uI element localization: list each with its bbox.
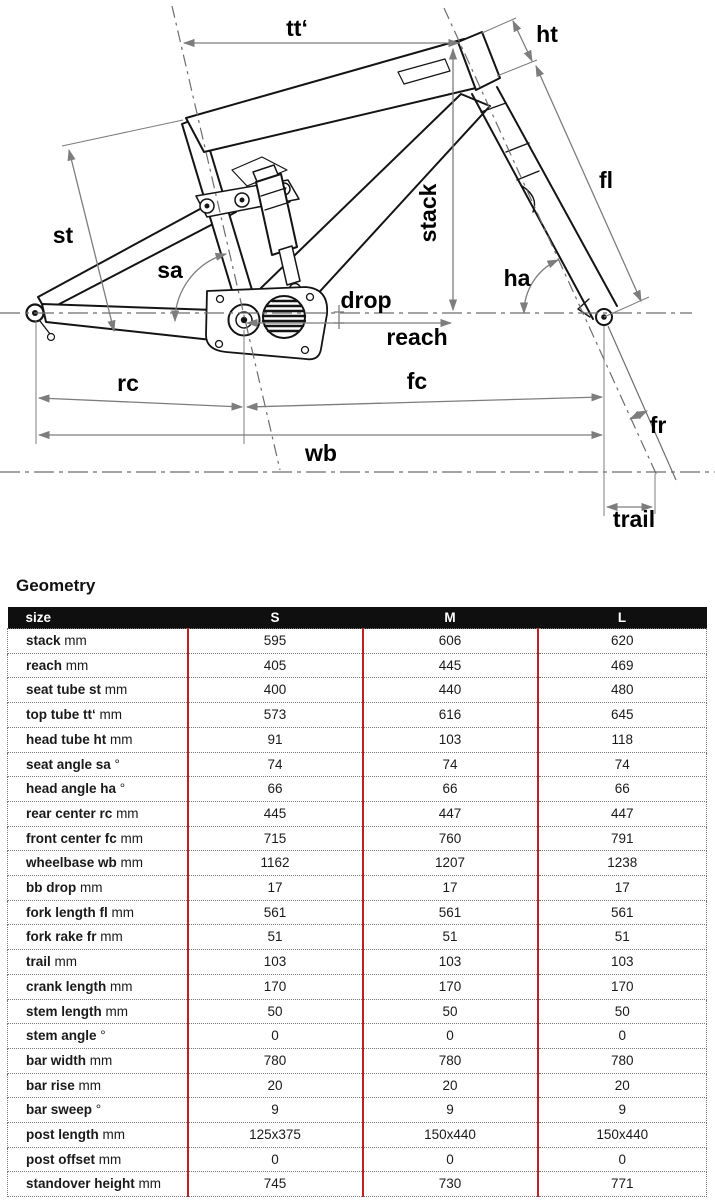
row-label: bar width — [26, 1053, 86, 1068]
value-cell-m: 9 — [363, 1098, 538, 1123]
table-row: head tube ht mm91103118 — [8, 727, 707, 752]
row-label: seat tube st — [26, 682, 101, 697]
table-row: trail mm103103103 — [8, 950, 707, 975]
row-label: stack — [26, 633, 61, 648]
value-cell-m: 440 — [363, 678, 538, 703]
row-label-cell: top tube tt‘ mm — [8, 703, 188, 728]
value-cell-s: 400 — [188, 678, 363, 703]
value-cell-m: 103 — [363, 950, 538, 975]
row-label-cell: crank length mm — [8, 974, 188, 999]
label-top-tube: tt‘ — [286, 15, 308, 41]
row-unit: mm — [106, 732, 132, 747]
value-cell-s: 715 — [188, 826, 363, 851]
value-cell-s: 74 — [188, 752, 363, 777]
row-label: reach — [26, 658, 62, 673]
row-unit: mm — [75, 1078, 101, 1093]
row-unit: mm — [96, 707, 122, 722]
table-row: bar width mm780780780 — [8, 1048, 707, 1073]
value-cell-l: 469 — [538, 653, 707, 678]
row-label-cell: stem angle ° — [8, 1024, 188, 1049]
value-cell-s: 50 — [188, 999, 363, 1024]
row-label: standover height — [26, 1176, 135, 1191]
row-label-cell: head angle ha ° — [8, 777, 188, 802]
size-column-header-m: M — [363, 607, 538, 629]
row-unit: mm — [51, 954, 77, 969]
value-cell-l: 561 — [538, 900, 707, 925]
row-unit: ° — [97, 1028, 106, 1043]
value-cell-l: 1238 — [538, 851, 707, 876]
row-unit: mm — [117, 831, 143, 846]
row-unit: mm — [76, 880, 102, 895]
row-label-cell: post offset mm — [8, 1147, 188, 1172]
value-cell-m: 1207 — [363, 851, 538, 876]
table-row: fork length fl mm561561561 — [8, 900, 707, 925]
row-unit: mm — [97, 929, 123, 944]
size-column-header: size — [8, 607, 188, 629]
table-row: post length mm125x375150x440150x440 — [8, 1123, 707, 1148]
table-row: seat angle sa °747474 — [8, 752, 707, 777]
value-cell-s: 445 — [188, 801, 363, 826]
steering-axis-line — [444, 8, 658, 478]
value-cell-s: 91 — [188, 727, 363, 752]
label-stack: stack — [415, 183, 441, 242]
label-fork-rake: fr — [650, 412, 667, 438]
fork-blade-rear-edge — [472, 94, 593, 319]
row-label: seat angle sa — [26, 757, 111, 772]
value-cell-m: 780 — [363, 1048, 538, 1073]
row-label: trail — [26, 954, 51, 969]
value-cell-l: 645 — [538, 703, 707, 728]
row-unit: ° — [116, 781, 125, 796]
value-cell-l: 620 — [538, 629, 707, 654]
geometry-diagram: tt‘ ht st sa stack fl ha drop reach rc f… — [0, 0, 715, 560]
row-unit: mm — [62, 658, 88, 673]
value-cell-m: 150x440 — [363, 1123, 538, 1148]
row-label-cell: seat tube st mm — [8, 678, 188, 703]
table-row: bar sweep °999 — [8, 1098, 707, 1123]
label-trail: trail — [613, 506, 655, 532]
value-cell-s: 51 — [188, 925, 363, 950]
value-cell-s: 125x375 — [188, 1123, 363, 1148]
value-cell-m: 616 — [363, 703, 538, 728]
value-cell-m: 17 — [363, 876, 538, 901]
label-front-center: fc — [407, 368, 428, 394]
row-unit: mm — [135, 1176, 161, 1191]
value-cell-l: 118 — [538, 727, 707, 752]
value-cell-l: 150x440 — [538, 1123, 707, 1148]
row-unit: mm — [101, 682, 127, 697]
value-cell-l: 50 — [538, 999, 707, 1024]
table-row: top tube tt‘ mm573616645 — [8, 703, 707, 728]
value-cell-m: 51 — [363, 925, 538, 950]
value-cell-l: 66 — [538, 777, 707, 802]
dim-fork-rake — [630, 411, 647, 419]
value-cell-s: 0 — [188, 1024, 363, 1049]
row-label: post offset — [26, 1152, 95, 1167]
value-cell-m: 74 — [363, 752, 538, 777]
row-unit: mm — [117, 855, 143, 870]
value-cell-s: 103 — [188, 950, 363, 975]
row-label-cell: fork rake fr mm — [8, 925, 188, 950]
row-label: fork rake fr — [26, 929, 97, 944]
value-cell-m: 170 — [363, 974, 538, 999]
table-row: stack mm595606620 — [8, 629, 707, 654]
row-label: rear center rc — [26, 806, 112, 821]
row-label-cell: fork length fl mm — [8, 900, 188, 925]
table-row: rear center rc mm445447447 — [8, 801, 707, 826]
table-row: wheelbase wb mm116212071238 — [8, 851, 707, 876]
value-cell-l: 0 — [538, 1147, 707, 1172]
value-cell-s: 780 — [188, 1048, 363, 1073]
row-unit: mm — [99, 1127, 125, 1142]
label-head-tube: ht — [536, 21, 558, 47]
value-cell-s: 20 — [188, 1073, 363, 1098]
row-label: stem angle — [26, 1028, 97, 1043]
value-cell-l: 771 — [538, 1172, 707, 1197]
dim-fork-length — [536, 66, 641, 301]
row-label: wheelbase wb — [26, 855, 117, 870]
value-cell-l: 51 — [538, 925, 707, 950]
row-label-cell: stem length mm — [8, 999, 188, 1024]
size-column-header-s: S — [188, 607, 363, 629]
value-cell-m: 760 — [363, 826, 538, 851]
value-cell-l: 447 — [538, 801, 707, 826]
value-cell-s: 66 — [188, 777, 363, 802]
row-unit: ° — [92, 1102, 101, 1117]
value-cell-m: 561 — [363, 900, 538, 925]
row-unit: ° — [111, 757, 120, 772]
value-cell-l: 20 — [538, 1073, 707, 1098]
label-bb-drop: drop — [340, 287, 391, 313]
table-row: fork rake fr mm515151 — [8, 925, 707, 950]
value-cell-l: 780 — [538, 1048, 707, 1073]
value-cell-l: 791 — [538, 826, 707, 851]
row-label-cell: seat angle sa ° — [8, 752, 188, 777]
row-unit: mm — [86, 1053, 112, 1068]
value-cell-l: 9 — [538, 1098, 707, 1123]
row-label: bar sweep — [26, 1102, 92, 1117]
geometry-table: size SML stack mm595606620reach mm405445… — [7, 607, 707, 1197]
label-reach: reach — [386, 324, 447, 350]
value-cell-m: 66 — [363, 777, 538, 802]
row-label: post length — [26, 1127, 99, 1142]
bike-geometry-page: tt‘ ht st sa stack fl ha drop reach rc f… — [0, 0, 715, 1200]
row-label: crank length — [26, 979, 106, 994]
value-cell-m: 445 — [363, 653, 538, 678]
row-label: head angle ha — [26, 781, 116, 796]
value-cell-m: 0 — [363, 1024, 538, 1049]
row-label-cell: reach mm — [8, 653, 188, 678]
row-label-cell: front center fc mm — [8, 826, 188, 851]
table-row: crank length mm170170170 — [8, 974, 707, 999]
row-unit: mm — [112, 806, 138, 821]
table-row: reach mm405445469 — [8, 653, 707, 678]
value-cell-s: 573 — [188, 703, 363, 728]
value-cell-l: 0 — [538, 1024, 707, 1049]
row-label-cell: bar rise mm — [8, 1073, 188, 1098]
size-column-header-l: L — [538, 607, 707, 629]
row-label: top tube tt‘ — [26, 707, 96, 722]
value-cell-s: 170 — [188, 974, 363, 999]
table-row: standover height mm745730771 — [8, 1172, 707, 1197]
chain-stay — [42, 304, 214, 340]
table-row: stem length mm505050 — [8, 999, 707, 1024]
row-label-cell: trail mm — [8, 950, 188, 975]
row-label: fork length fl — [26, 905, 108, 920]
row-label: front center fc — [26, 831, 117, 846]
label-wheelbase: wb — [304, 440, 337, 466]
table-row: front center fc mm715760791 — [8, 826, 707, 851]
value-cell-m: 730 — [363, 1172, 538, 1197]
row-label: stem length — [26, 1004, 102, 1019]
row-label-cell: bar width mm — [8, 1048, 188, 1073]
value-cell-s: 9 — [188, 1098, 363, 1123]
value-cell-m: 0 — [363, 1147, 538, 1172]
row-label-cell: standover height mm — [8, 1172, 188, 1197]
geometry-heading: Geometry — [16, 576, 95, 596]
value-cell-s: 405 — [188, 653, 363, 678]
row-label: bar rise — [26, 1078, 75, 1093]
table-header-row: size SML — [8, 607, 707, 629]
value-cell-s: 1162 — [188, 851, 363, 876]
value-cell-l: 74 — [538, 752, 707, 777]
fork-offset-line — [608, 326, 676, 480]
value-cell-m: 606 — [363, 629, 538, 654]
value-cell-l: 480 — [538, 678, 707, 703]
row-label-cell: stack mm — [8, 629, 188, 654]
row-unit: mm — [102, 1004, 128, 1019]
dim-rear-center — [39, 398, 242, 407]
table-row: head angle ha °666666 — [8, 777, 707, 802]
bike-frame-drawing — [27, 32, 618, 359]
label-seat-angle: sa — [157, 257, 183, 283]
label-head-angle: ha — [504, 265, 531, 291]
value-cell-s: 745 — [188, 1172, 363, 1197]
table-row: stem angle °000 — [8, 1024, 707, 1049]
dim-head-tube — [513, 21, 532, 61]
value-cell-m: 447 — [363, 801, 538, 826]
dim-front-center — [247, 397, 602, 407]
label-rear-center: rc — [117, 370, 139, 396]
row-unit: mm — [106, 979, 132, 994]
value-cell-s: 595 — [188, 629, 363, 654]
label-fork-length: fl — [599, 167, 613, 193]
row-unit: mm — [61, 633, 87, 648]
value-cell-s: 17 — [188, 876, 363, 901]
value-cell-s: 561 — [188, 900, 363, 925]
table-row: bb drop mm171717 — [8, 876, 707, 901]
dim-seat-tube — [69, 150, 114, 331]
table-row: post offset mm000 — [8, 1147, 707, 1172]
value-cell-l: 103 — [538, 950, 707, 975]
row-unit: mm — [95, 1152, 121, 1167]
row-label-cell: bar sweep ° — [8, 1098, 188, 1123]
row-label: bb drop — [26, 880, 76, 895]
table-row: bar rise mm202020 — [8, 1073, 707, 1098]
row-unit: mm — [108, 905, 134, 920]
value-cell-l: 170 — [538, 974, 707, 999]
row-label: head tube ht — [26, 732, 106, 747]
label-seat-tube: st — [53, 222, 74, 248]
value-cell-m: 103 — [363, 727, 538, 752]
row-label-cell: bb drop mm — [8, 876, 188, 901]
row-label-cell: post length mm — [8, 1123, 188, 1148]
row-label-cell: head tube ht mm — [8, 727, 188, 752]
table-row: seat tube st mm400440480 — [8, 678, 707, 703]
value-cell-s: 0 — [188, 1147, 363, 1172]
row-label-cell: wheelbase wb mm — [8, 851, 188, 876]
value-cell-l: 17 — [538, 876, 707, 901]
value-cell-m: 50 — [363, 999, 538, 1024]
value-cell-m: 20 — [363, 1073, 538, 1098]
motor-cover-hatching — [263, 301, 305, 331]
row-label-cell: rear center rc mm — [8, 801, 188, 826]
